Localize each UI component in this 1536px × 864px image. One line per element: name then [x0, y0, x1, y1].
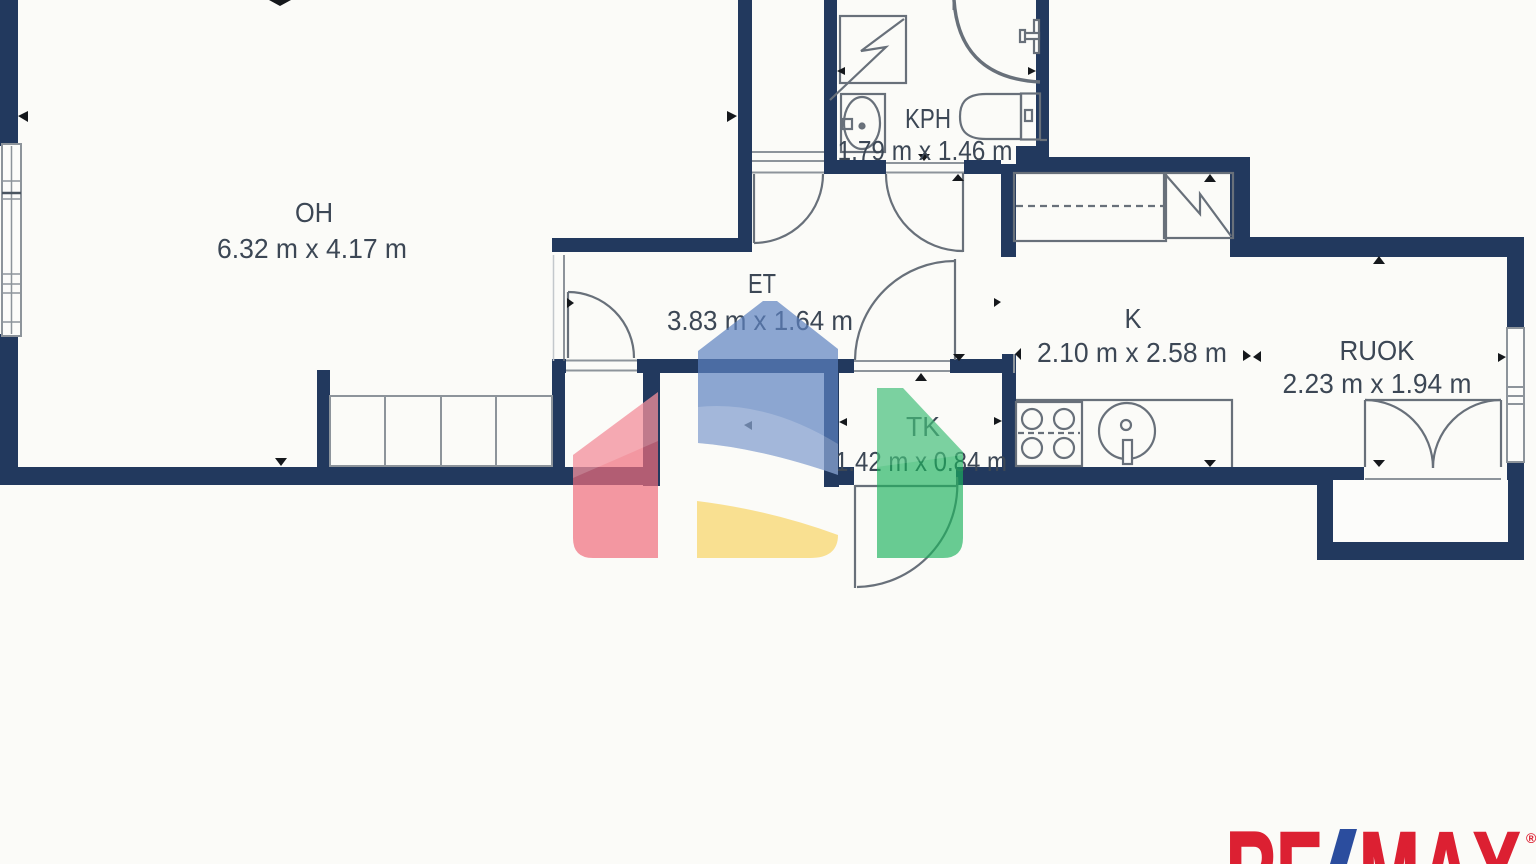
- svg-text:RUOK: RUOK: [1340, 335, 1415, 366]
- svg-text:OH: OH: [295, 197, 333, 228]
- svg-text:2.23 m x 1.94 m: 2.23 m x 1.94 m: [1283, 368, 1472, 399]
- svg-text:ET: ET: [748, 268, 776, 299]
- svg-text:1.79 m x 1.46 m: 1.79 m x 1.46 m: [838, 135, 1013, 166]
- svg-text:K: K: [1125, 303, 1142, 334]
- svg-text:MAX: MAX: [1359, 808, 1521, 864]
- svg-text:2.10 m x 2.58 m: 2.10 m x 2.58 m: [1037, 337, 1227, 368]
- svg-text:KPH: KPH: [905, 103, 951, 134]
- svg-text:RE: RE: [1226, 808, 1323, 864]
- svg-text:®: ®: [1526, 830, 1536, 846]
- svg-text:6.32 m x 4.17 m: 6.32 m x 4.17 m: [217, 233, 407, 264]
